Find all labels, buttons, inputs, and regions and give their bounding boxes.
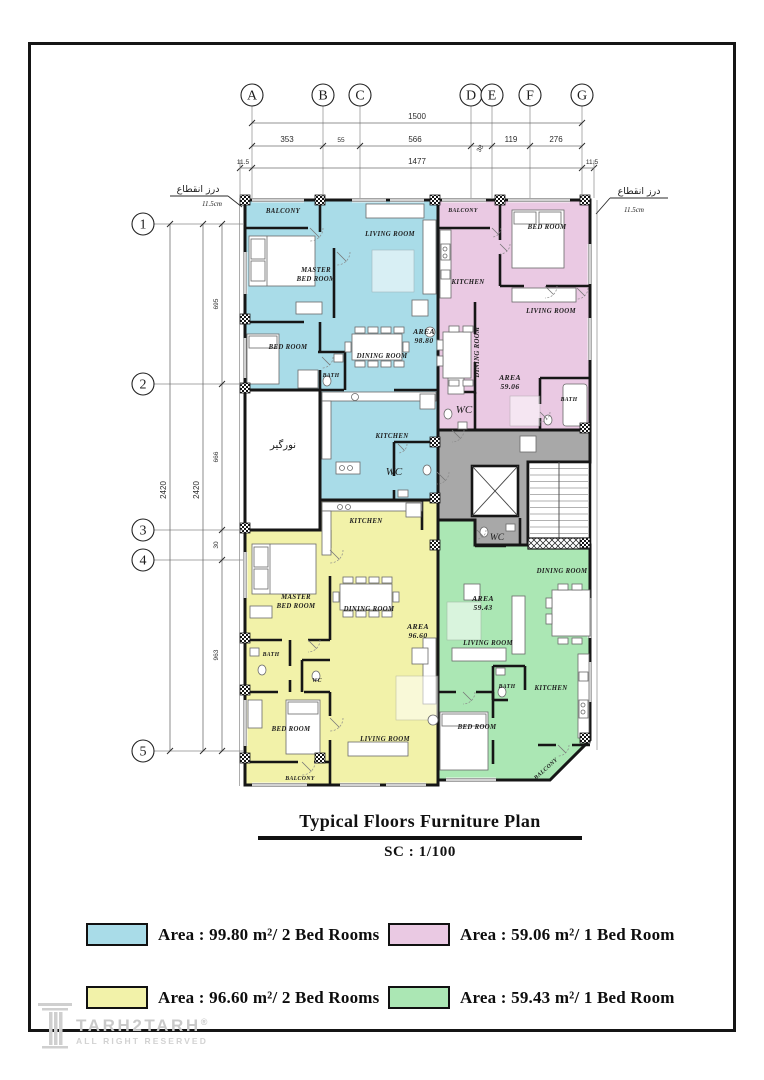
grid-column-letter: E [488,89,497,104]
dim-overall-left: 2420 [159,481,168,499]
room-label: BED ROOM [527,224,567,231]
room-label: LIVING ROOM [525,308,576,315]
legend-item: Area : 59.06 m²/ 1 Bed Room [388,923,675,946]
room-label: MASTER [300,267,331,274]
dim-segment-left: 666 [213,451,220,462]
room-label: AREA [412,327,435,336]
dim-segment-top: 38 [476,144,486,154]
column-block [580,538,590,548]
room-label: MASTER [280,594,311,601]
legend-item: Area : 59.43 m²/ 1 Bed Room [388,986,675,1009]
room-label: DINING ROOM [474,326,481,378]
room-label: BALCONY [284,776,315,782]
grid-column-letter: A [247,89,258,104]
column-block [580,195,590,205]
room-label: BATH [560,397,578,403]
joint-label-right: درز انقطاع [618,186,661,197]
room-label: WC [312,678,322,684]
legend-swatch [388,923,450,946]
legend-label: Area : 59.43 m²/ 1 Bed Room [460,988,675,1008]
dim-overall-top: 1500 [408,112,426,121]
grid-rows: 12345 [132,213,243,762]
room-label: DINING ROOM [356,353,408,360]
legend-swatch [86,923,148,946]
room-label: KITCHEN [348,518,383,525]
room-label: WC [490,533,505,543]
column-block [315,195,325,205]
grid-column-letter: B [318,89,327,104]
room-label: BED ROOM [296,276,336,283]
drawing-scale: SC : 1/100 [248,844,592,861]
dim-segment-left: 30 [213,541,220,549]
column-block [580,423,590,433]
brand-tagline: ALL RIGHT RESERVED [76,1036,208,1046]
room-label: LIVING ROOM [359,736,410,743]
light-well [245,390,320,530]
room-label: AREA [471,594,494,603]
room-label: 59.06 [500,382,519,391]
dim-segment-top: 276 [549,135,563,144]
room-label: نورگیر [269,439,296,451]
top-dimensions: 1500353555663811927611.5147711.5 [237,112,599,198]
room-label: KITCHEN [533,685,568,692]
brand-name: TARH2TARH® [76,1017,208,1034]
room-label: BATH [322,373,340,379]
column-block [430,437,440,447]
room-label: BALCONY [447,208,478,214]
drawing-sheet: { "sheet": {"bg": "#ffffff", "border_col… [0,0,764,1080]
grid-row-number: 3 [140,524,147,539]
room-label: BALCONY [265,208,301,215]
room-label: BED ROOM [276,603,316,610]
room-label: LIVING ROOM [364,231,415,238]
room-label: 96.60 [408,631,427,640]
room-label: BED ROOM [457,724,497,731]
room-label: DINING ROOM [343,606,395,613]
dim-segment-top: 119 [505,135,518,144]
room-label: LIVING ROOM [462,640,513,647]
title-block: Typical Floors Furniture Plan SC : 1/100 [248,811,592,861]
room-label: BATH [498,684,516,690]
room-label: WC [456,404,473,416]
column-block [240,314,250,324]
column-block [240,685,250,695]
dim-segment-left: 695 [213,298,220,309]
column-block [495,195,505,205]
legend-item: Area : 99.80 m²/ 2 Bed Rooms [86,923,379,946]
column-block [580,733,590,743]
joint-value-right: 11.5cm [624,206,644,214]
dim-segment-top: 566 [408,135,422,144]
column-block [240,383,250,393]
dim-overall-left: 2420 [192,481,201,499]
column-block [430,195,440,205]
grid-row-number: 5 [140,745,147,760]
floor-plan-drawing: درز انقطاع11.5cmدرز انقطاع11.5cm ABCDEFG… [0,0,764,1080]
registered-mark: ® [201,1017,208,1027]
logo: TARH2TARH® ALL RIGHT RESERVED [38,999,208,1051]
left-dimensions: 2420242069566630963 [159,221,225,754]
column-block [240,523,250,533]
column-block [240,753,250,763]
column-block [240,195,250,205]
legend-label: Area : 99.80 m²/ 2 Bed Rooms [158,925,379,945]
joint-value-left: 11.5cm [202,200,222,208]
room-label: AREA [498,373,521,382]
column-block [430,540,440,550]
room-label: KITCHEN [450,279,485,286]
dim-inner-top: 11.5 [237,159,250,166]
title-underline [258,836,582,840]
room-label: KITCHEN [374,433,409,440]
column-block [430,493,440,503]
room-label: 59.43 [473,603,492,612]
room-label: 98.80 [414,336,433,345]
column-block [315,753,325,763]
grid-column-letter: F [526,89,534,104]
dim-inner-top: 1477 [408,157,426,166]
room-label: BED ROOM [268,344,308,351]
room-label: BATH [262,652,280,658]
drawing-title: Typical Floors Furniture Plan [248,811,592,832]
column-icon [38,999,72,1051]
grid-column-letter: D [466,89,476,104]
legend-swatch [388,986,450,1009]
room-label: BED ROOM [271,726,311,733]
joint-label-left: درز انقطاع [177,184,220,195]
dim-segment-top: 353 [280,135,294,144]
grid-column-letter: G [577,89,587,104]
dim-segment-top: 55 [337,137,345,144]
dim-segment-left: 963 [213,649,220,660]
grid-row-number: 4 [140,554,147,569]
grid-row-number: 2 [140,378,147,393]
column-block [240,633,250,643]
room-label: DINING ROOM [536,568,588,575]
dim-inner-top: 11.5 [586,159,599,166]
grid-column-letter: C [355,89,364,104]
room-label: AREA [406,622,429,631]
legend-label: Area : 59.06 m²/ 1 Bed Room [460,925,675,945]
room-label: WC [386,466,403,478]
grid-row-number: 1 [140,218,147,233]
